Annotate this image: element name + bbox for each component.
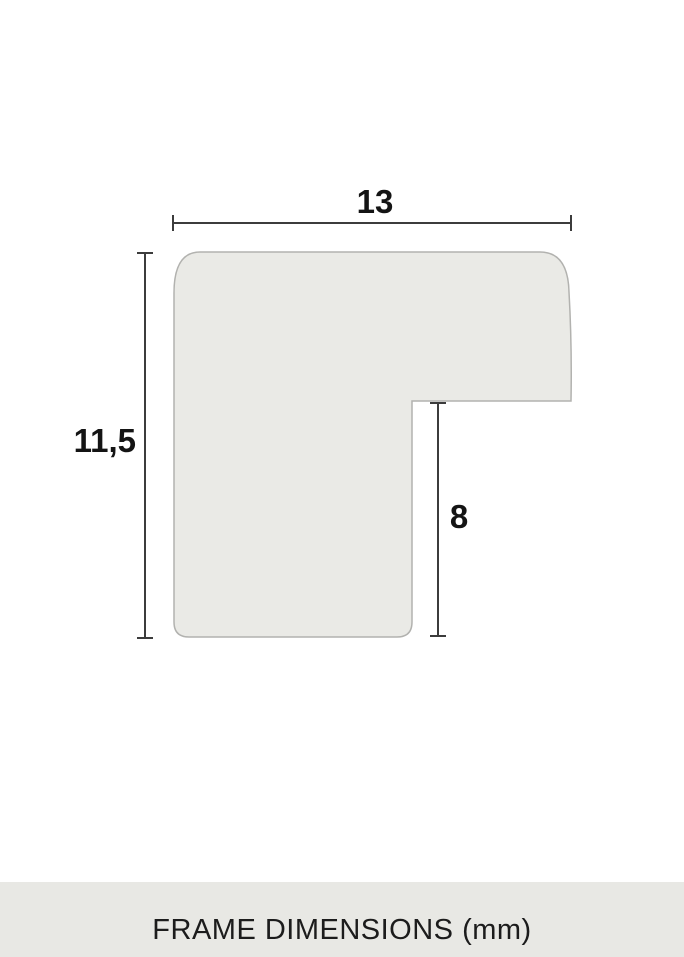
- rabbet-dimension-value: 8: [450, 498, 468, 535]
- rabbet-dimension: 8: [430, 403, 468, 636]
- width-dimension: 13: [173, 183, 571, 231]
- width-dimension-value: 13: [357, 183, 394, 220]
- frame-profile-diagram: 13 11,5 8: [0, 0, 684, 882]
- height-dimension: 11,5: [74, 253, 153, 638]
- caption-band: FRAME DIMENSIONS (mm): [0, 882, 684, 957]
- caption-text: FRAME DIMENSIONS (mm): [152, 914, 531, 947]
- frame-dimensions-page: 13 11,5 8 FRAME DIMENSIONS (mm): [0, 0, 684, 957]
- height-dimension-value: 11,5: [74, 422, 136, 459]
- frame-profile-shape: [174, 252, 571, 637]
